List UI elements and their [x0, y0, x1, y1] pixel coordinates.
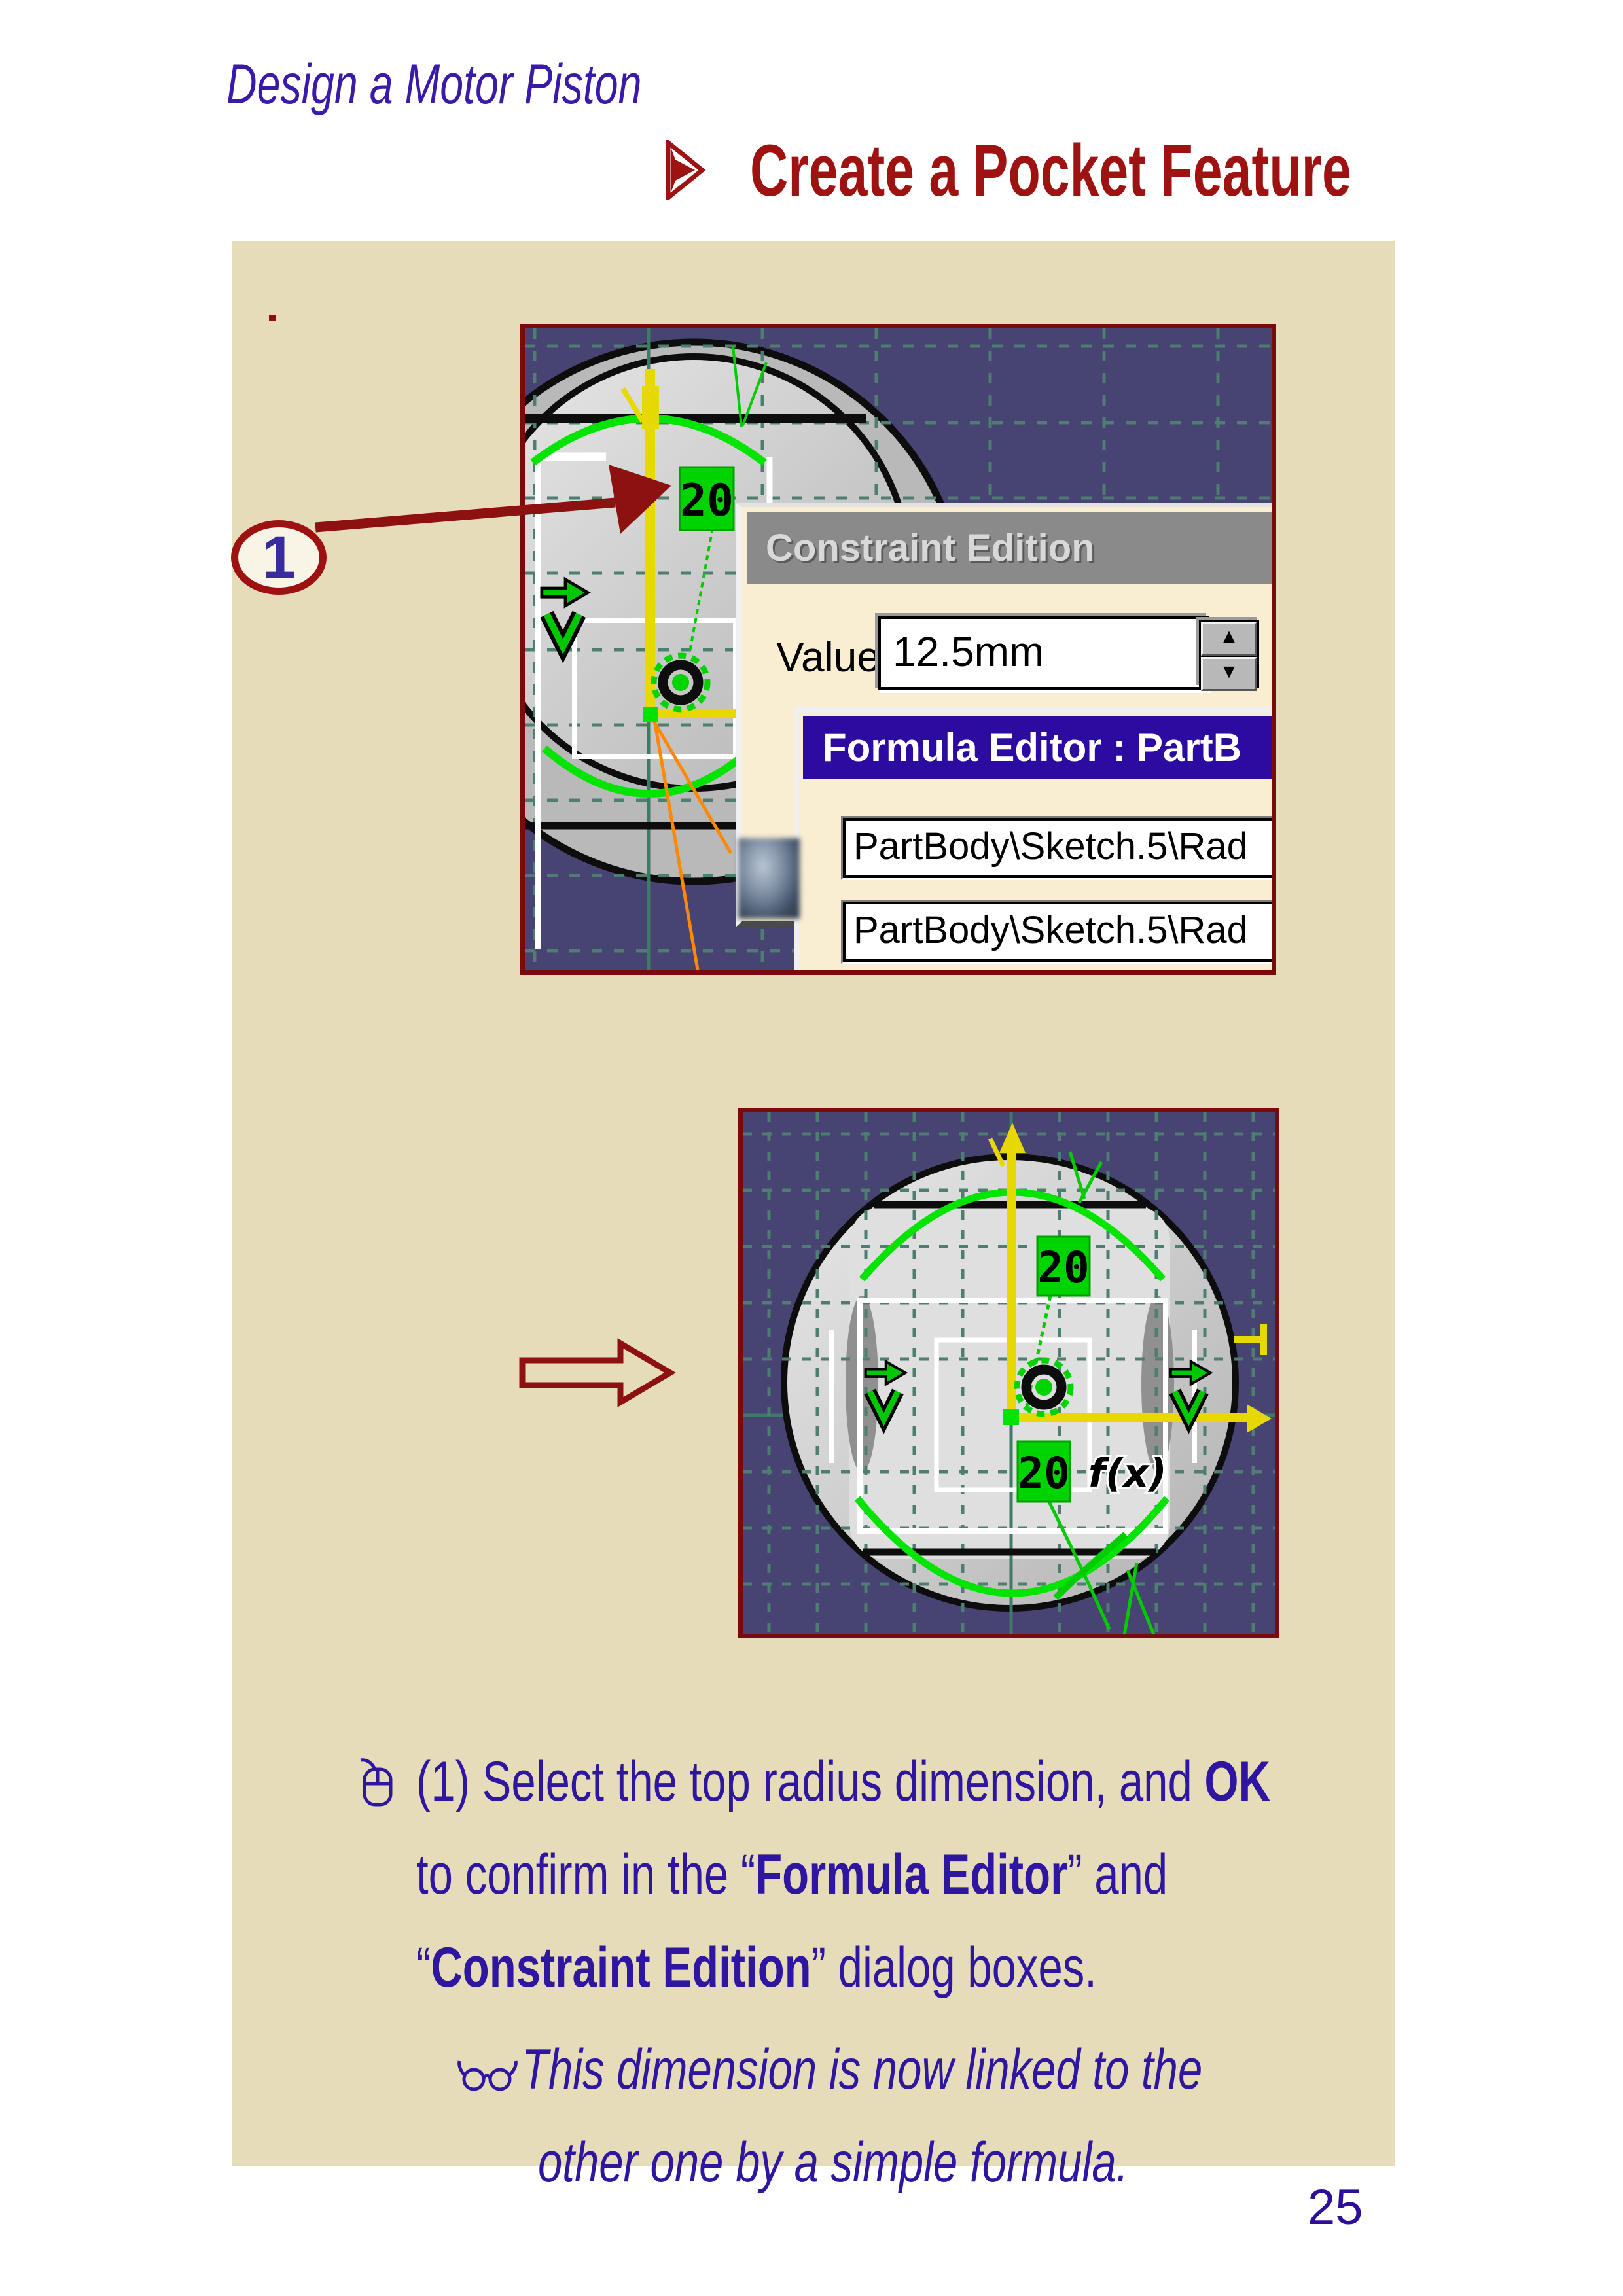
center-anchor-point	[643, 707, 658, 722]
spinner-up-button[interactable]: ▲	[1201, 622, 1257, 656]
step-marker-circle: 1	[231, 520, 327, 595]
cad2-scene: 20 20 f(x)	[743, 1112, 1275, 1634]
svg-text:20: 20	[1018, 1448, 1069, 1498]
value-spinner: ▲ ▼	[1199, 620, 1259, 688]
instruction-line-2: to confirm in the “Formula Editor” and	[416, 1843, 1380, 1907]
radius-dim-label-bottom[interactable]: 20	[1018, 1441, 1070, 1502]
radius-dim-label-top[interactable]: 20	[1037, 1237, 1090, 1296]
formula-field-1[interactable]: PartBody\Sketch.5\Rad	[843, 818, 1276, 878]
glasses-icon	[457, 2053, 518, 2094]
formula-dialog-titlebar[interactable]: Formula Editor : PartB	[803, 716, 1276, 779]
formula-field-1-frame: PartBody\Sketch.5\Rad	[841, 816, 1276, 880]
page-title: Design a Motor Piston	[226, 52, 780, 117]
right-pocket-shadow	[1141, 1296, 1174, 1472]
slide-page: Design a Motor Piston Create a Pocket Fe…	[0, 0, 1623, 2296]
formula-field-2[interactable]: PartBody\Sketch.5\Rad	[843, 902, 1276, 962]
cad-screenshot-before: 20 Constraint Edition Value 12.5mm ▲ ▼ F…	[520, 324, 1276, 975]
section-heading: Create a Pocket Feature	[750, 128, 1585, 213]
stray-dot	[269, 315, 276, 321]
spinner-down-button[interactable]: ▼	[1201, 657, 1257, 691]
note-line-1: This dimension is now linked to the	[522, 2038, 1395, 2102]
svg-text:20: 20	[680, 475, 734, 527]
page-number: 25	[1308, 2179, 1363, 2236]
step-marker-number: 1	[262, 524, 295, 591]
constraint-dialog-titlebar[interactable]: Constraint Edition	[747, 512, 1276, 584]
value-label: Value	[776, 633, 880, 681]
center-anchor-point	[1003, 1409, 1019, 1425]
formula-flag-fx: f(x)	[1088, 1451, 1167, 1496]
cad-screenshot-after: 20 20 f(x)	[738, 1108, 1279, 1638]
value-input[interactable]: 12.5mm	[878, 616, 1209, 690]
formula-field-2-frame: PartBody\Sketch.5\Rad	[841, 900, 1276, 964]
hollow-arrow-icon	[517, 1337, 677, 1414]
dialog-corner-preview	[738, 838, 800, 919]
mouse-icon	[357, 1754, 397, 1811]
formula-editor-dialog: Formula Editor : PartB PartBody\Sketch.5…	[794, 707, 1276, 975]
instruction-line-3: “Constraint Edition” dialog boxes.	[416, 1935, 1289, 2000]
note-line-2: other one by a simple formula.	[538, 2130, 1295, 2195]
radius-dim-label-selected[interactable]: 20	[680, 467, 734, 530]
arrow-bullet-icon	[665, 140, 707, 200]
instruction-line-1: (1) Select the top radius dimension, and…	[416, 1750, 1511, 1814]
svg-text:20: 20	[1037, 1243, 1089, 1293]
